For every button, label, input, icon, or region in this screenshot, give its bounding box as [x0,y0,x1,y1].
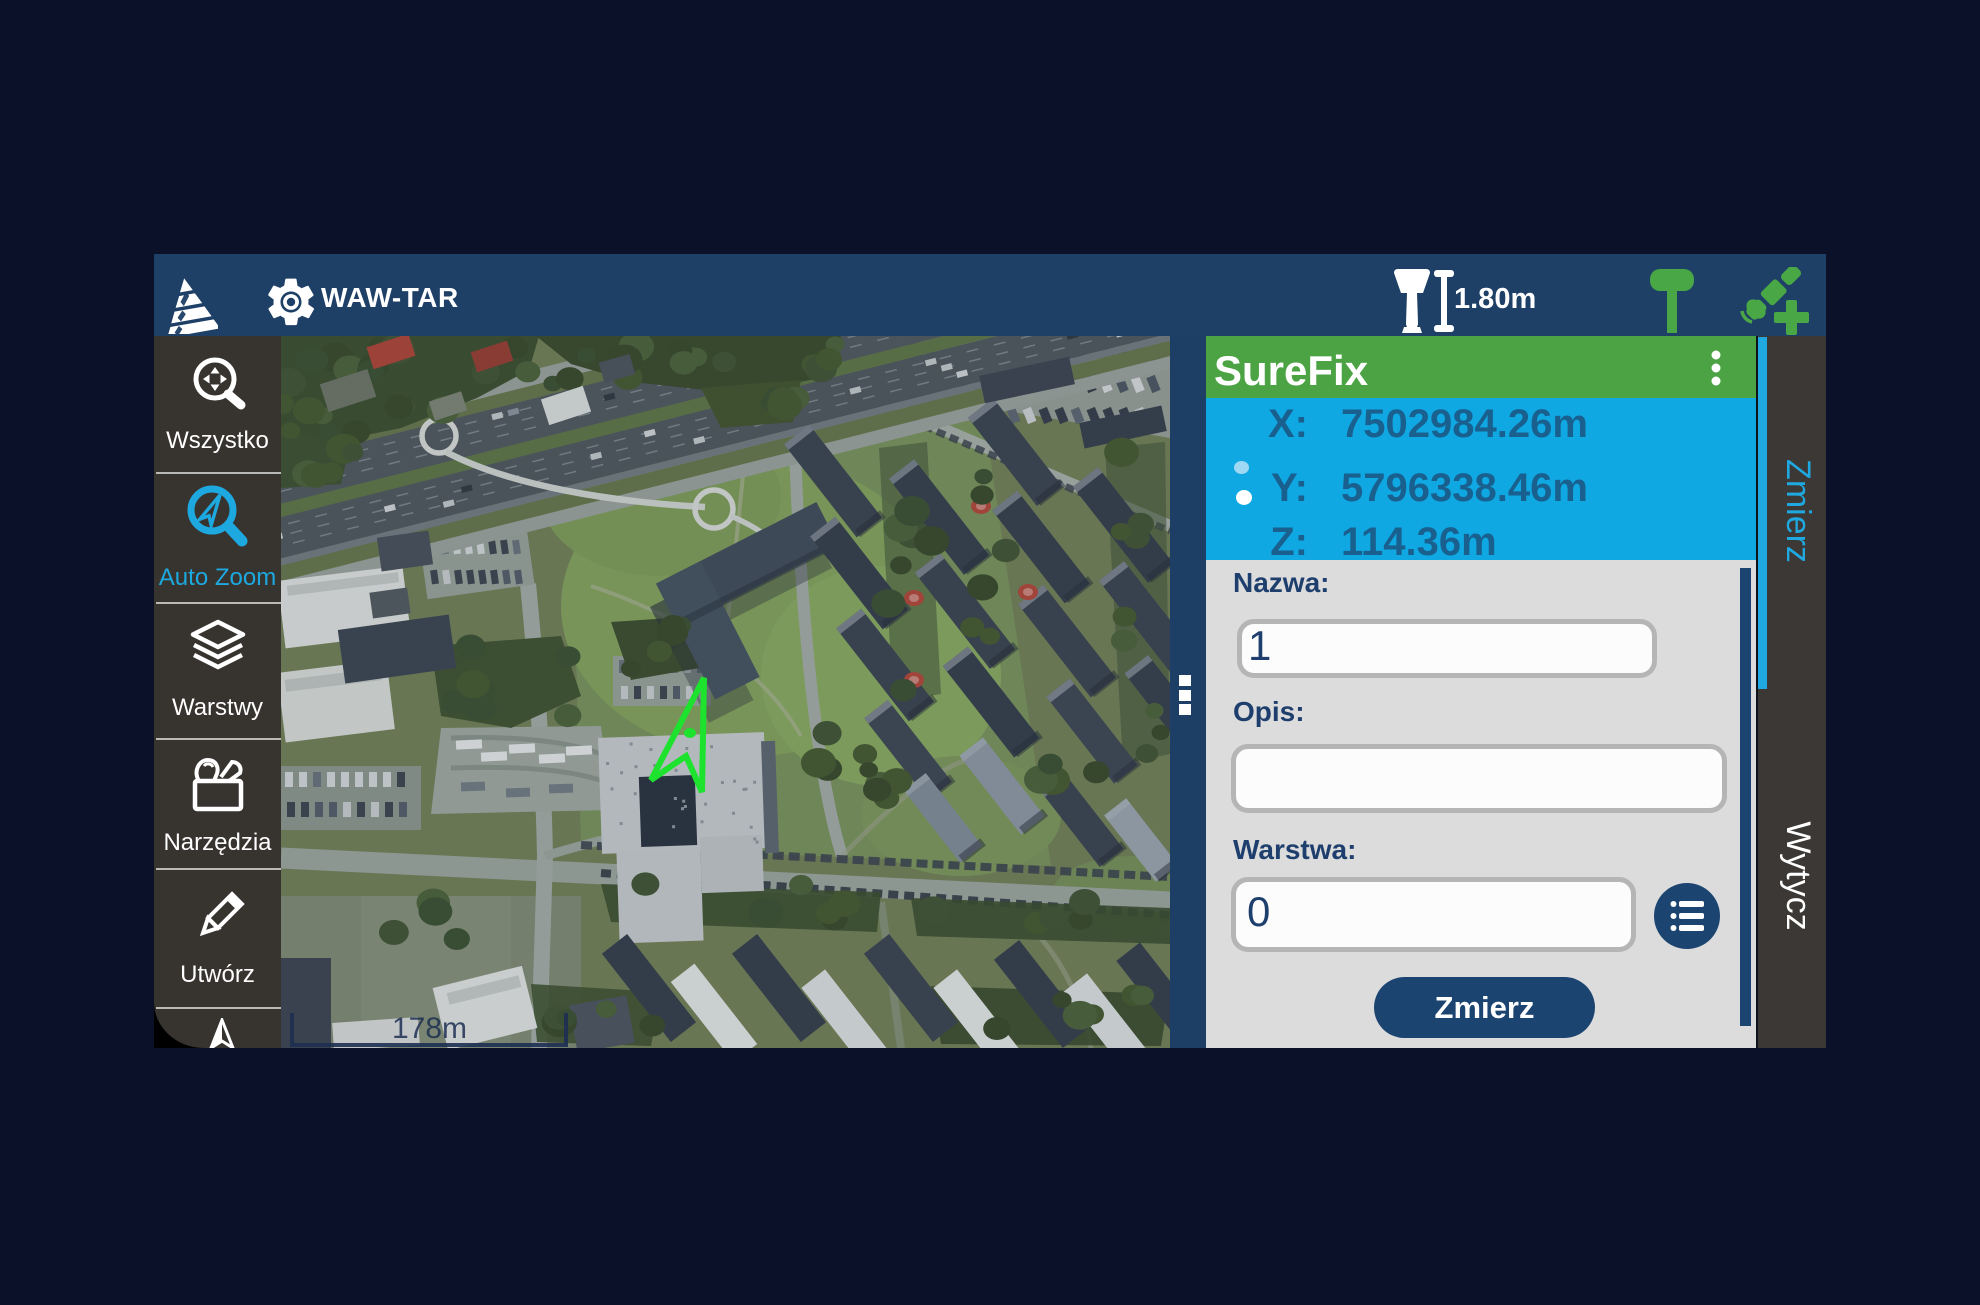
svg-text:178m: 178m [392,1012,467,1045]
